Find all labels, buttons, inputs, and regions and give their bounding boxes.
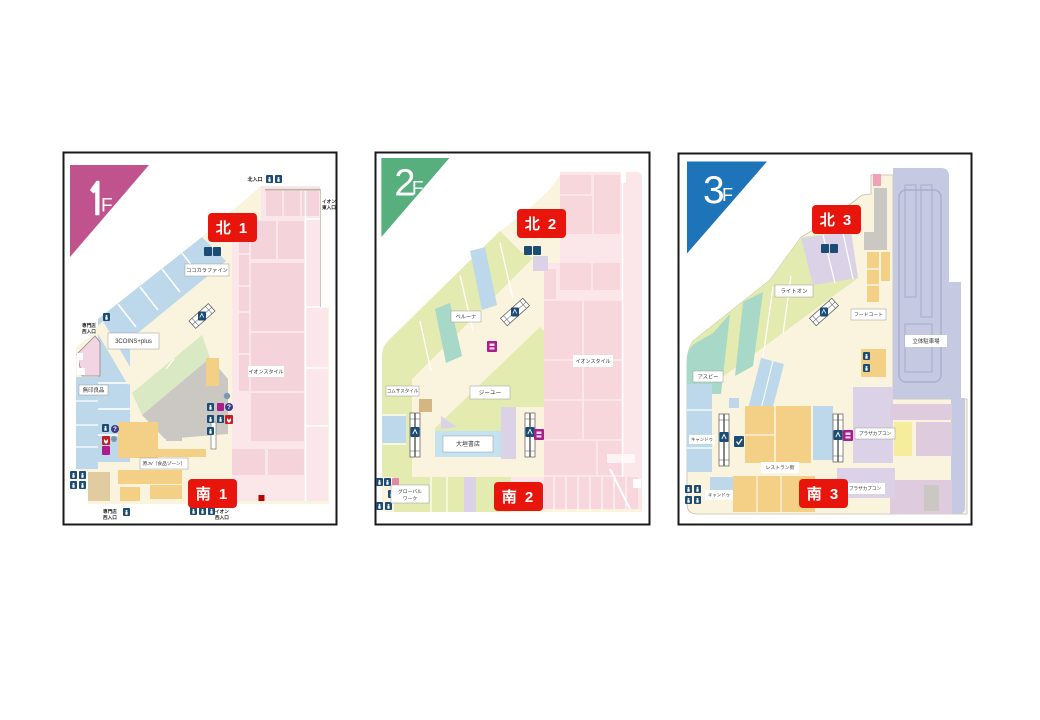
svg-text:西入口: 西入口 [103, 514, 117, 521]
svg-text:北 2: 北 2 [525, 216, 559, 233]
svg-text:南 1: 南 1 [196, 485, 230, 503]
svg-text:東入口: 東入口 [322, 204, 336, 211]
svg-text:大垣書店: 大垣書店 [456, 440, 480, 448]
svg-text:西入口: 西入口 [82, 328, 96, 335]
svg-text:イオンスタイル: イオンスタイル [576, 358, 611, 365]
svg-text:グローバル: グローバル [398, 488, 422, 495]
svg-text:イオンスタイル: イオンスタイル [249, 368, 284, 375]
svg-text:無印良品: 無印良品 [83, 386, 105, 394]
svg-text:南 3: 南 3 [807, 485, 841, 503]
svg-text:ココカラファイン: ココカラファイン [186, 267, 228, 274]
svg-text:?: ? [113, 426, 117, 433]
svg-text:ベルーナ: ベルーナ [456, 313, 477, 320]
svg-text:F: F [101, 196, 113, 217]
svg-text:西入口: 西入口 [215, 514, 229, 521]
svg-text:専門店: 専門店 [103, 508, 117, 515]
svg-text:ライトオン: ライトオン [781, 288, 808, 295]
svg-text:北 3: 北 3 [820, 212, 854, 229]
svg-text:イオン: イオン [215, 508, 229, 515]
svg-text:ジーユー: ジーユー [479, 390, 502, 397]
svg-text:3COINS+plus: 3COINS+plus [115, 339, 152, 345]
svg-text:コムサスタイル: コムサスタイル [387, 388, 419, 395]
svg-text:北入口: 北入口 [247, 176, 262, 183]
svg-text:レストラン街: レストラン街 [766, 464, 795, 471]
svg-text:フードコート: フードコート [854, 312, 883, 318]
svg-text:F: F [412, 179, 424, 200]
svg-text:立体駐車場: 立体駐車場 [913, 337, 941, 345]
svg-text:イオン: イオン [322, 198, 336, 205]
svg-text:北 1: 北 1 [216, 220, 250, 237]
svg-text:原JV（食品ゾーン）: 原JV（食品ゾーン） [143, 460, 186, 467]
svg-text:F: F [722, 185, 733, 205]
svg-text:?: ? [227, 404, 231, 411]
svg-text:専門店: 専門店 [82, 322, 96, 329]
svg-text:アスビー: アスビー [698, 372, 719, 380]
svg-text:南 2: 南 2 [502, 488, 536, 506]
svg-text:ワーク: ワーク [403, 496, 418, 502]
